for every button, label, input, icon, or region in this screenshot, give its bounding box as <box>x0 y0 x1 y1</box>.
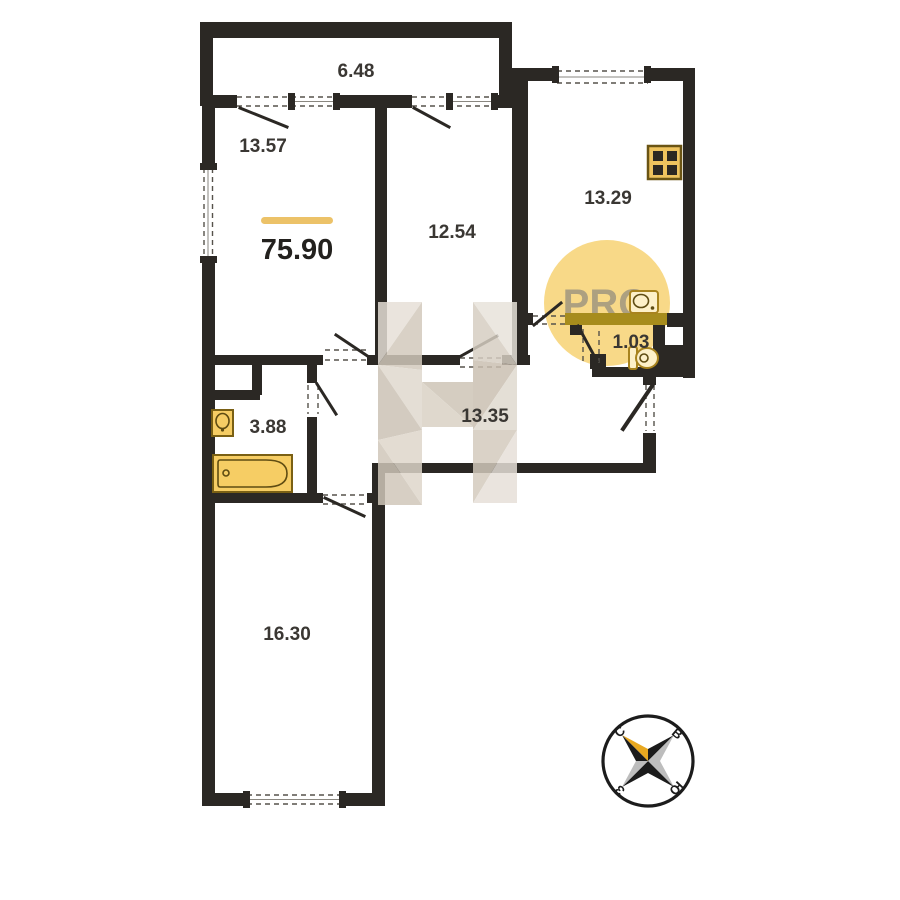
wall-segment <box>592 367 693 377</box>
balcony-window-room-1 <box>237 93 340 110</box>
door-room-3 <box>323 495 367 516</box>
wall-segment <box>643 375 656 385</box>
wall-segment <box>307 365 317 383</box>
area-label-room-3: 16.30 <box>263 624 311 645</box>
door-bathroom <box>308 384 336 414</box>
area-label-kitchen: 13.29 <box>584 188 632 209</box>
bathtub-icon <box>213 455 292 492</box>
wall-segment <box>528 313 533 325</box>
wall-segment <box>643 433 656 473</box>
stove-icon <box>648 146 681 179</box>
wall-segment <box>200 22 213 106</box>
highlighted-wall <box>565 313 667 325</box>
letter-watermark <box>378 302 517 505</box>
area-label-room-2: 12.54 <box>428 222 476 243</box>
area-label-balcony: 6.48 <box>338 61 375 82</box>
wall-segment <box>202 390 260 400</box>
window-room-3-south <box>243 791 346 808</box>
wall-segment <box>512 68 557 81</box>
wall-segment <box>202 258 215 806</box>
total-area-accent-bar <box>261 217 333 224</box>
floor-plan-page: PRO <box>0 0 900 900</box>
door-room-1 <box>325 335 369 360</box>
wash-basin-icon <box>212 410 233 436</box>
window-room-1-west <box>200 163 217 263</box>
area-label-wc: 1.03 <box>613 332 650 353</box>
area-label-bathroom: 3.88 <box>250 417 287 438</box>
total-area-value: 75.90 <box>261 234 334 266</box>
balcony-door-room-2 <box>414 108 449 127</box>
wall-segment <box>202 95 215 168</box>
balcony-door-room-1 <box>240 108 287 127</box>
wall-segment <box>667 313 683 327</box>
wall-segment <box>499 22 512 106</box>
wall-segment <box>338 95 412 108</box>
area-label-hallway: 13.35 <box>461 406 509 427</box>
wall-segment <box>202 793 247 806</box>
balcony-window-room-2 <box>412 93 498 110</box>
wall-segment <box>200 22 512 38</box>
wall-segment <box>372 463 385 806</box>
area-label-room-1: 13.57 <box>239 136 287 157</box>
entrance-door <box>623 385 654 431</box>
floor-plan: PRO <box>0 0 900 900</box>
wall-segment <box>683 68 695 378</box>
kitchen-sink-icon <box>630 291 658 313</box>
wall-segment <box>307 417 317 493</box>
wall-segment <box>202 355 323 365</box>
total-area: 75.90 <box>261 217 334 266</box>
wall-segment <box>497 95 512 108</box>
compass-rose: С В З Ю <box>603 716 693 806</box>
window-kitchen-north <box>552 66 651 83</box>
wall-segment <box>202 493 323 503</box>
